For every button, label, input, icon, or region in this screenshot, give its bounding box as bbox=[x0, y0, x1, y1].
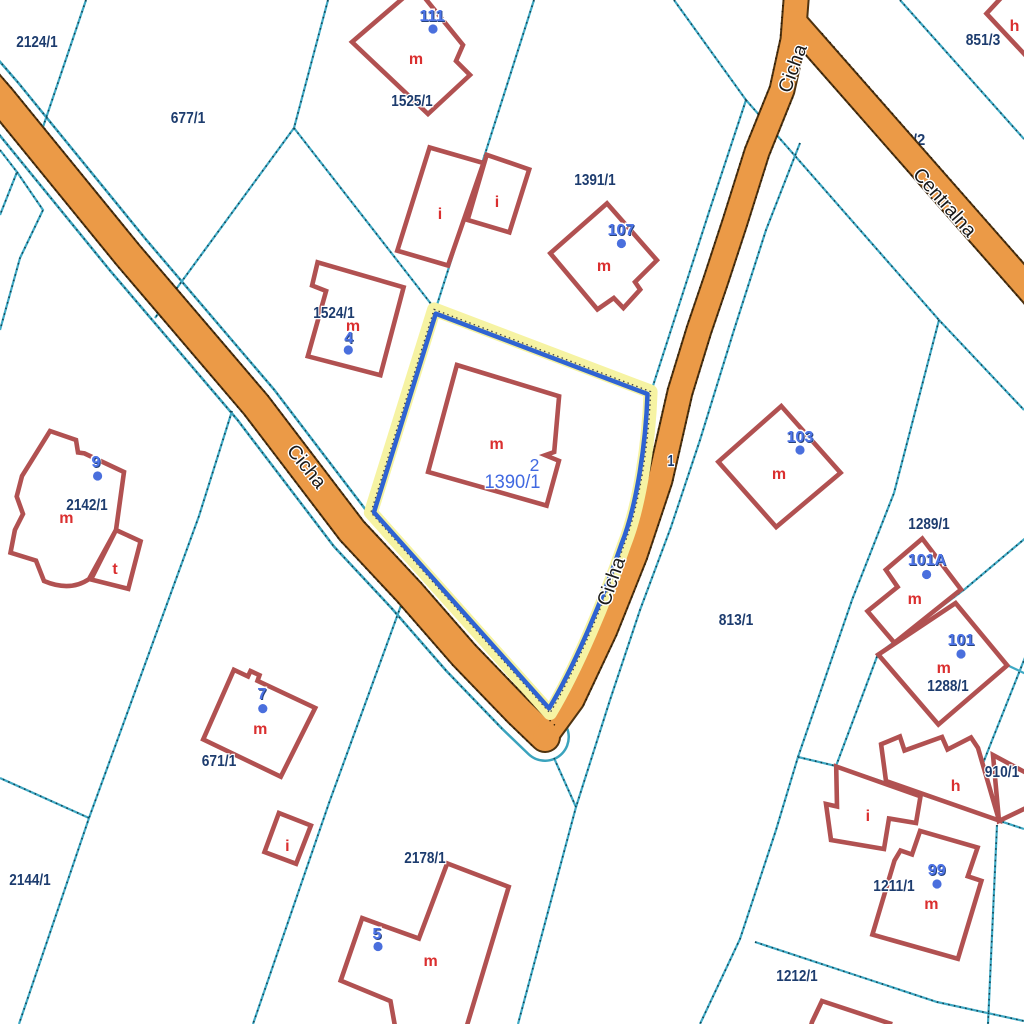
svg-text:1: 1 bbox=[668, 453, 675, 470]
svg-text:m: m bbox=[253, 721, 267, 738]
svg-text:103: 103 bbox=[787, 429, 814, 446]
svg-text:h: h bbox=[1010, 18, 1020, 35]
svg-text:101: 101 bbox=[948, 632, 975, 649]
svg-text:2: 2 bbox=[530, 455, 540, 475]
svg-text:m: m bbox=[908, 591, 922, 608]
svg-text:2178/1: 2178/1 bbox=[404, 850, 445, 867]
svg-text:1525/1: 1525/1 bbox=[391, 93, 432, 110]
svg-text:107: 107 bbox=[608, 222, 635, 239]
svg-text:4: 4 bbox=[344, 330, 353, 347]
svg-text:671/1: 671/1 bbox=[202, 753, 237, 770]
svg-text:h: h bbox=[951, 778, 961, 795]
svg-text:i: i bbox=[285, 838, 289, 855]
svg-text:813/1: 813/1 bbox=[719, 612, 754, 629]
svg-text:m: m bbox=[409, 51, 423, 68]
svg-text:m: m bbox=[924, 896, 938, 913]
svg-text:m: m bbox=[772, 466, 786, 483]
svg-text:2144/1: 2144/1 bbox=[9, 872, 50, 889]
svg-text:2124/1: 2124/1 bbox=[16, 34, 57, 51]
svg-text:m: m bbox=[489, 436, 503, 453]
svg-text:i: i bbox=[438, 206, 442, 223]
svg-text:1289/1: 1289/1 bbox=[908, 516, 949, 533]
svg-text:i: i bbox=[495, 194, 499, 211]
svg-text:t: t bbox=[112, 561, 118, 578]
svg-text:1211/1: 1211/1 bbox=[873, 878, 914, 895]
svg-text:5: 5 bbox=[373, 926, 382, 943]
svg-text:9: 9 bbox=[92, 454, 101, 471]
svg-text:111: 111 bbox=[420, 8, 445, 25]
svg-text:7: 7 bbox=[258, 686, 267, 703]
svg-text:m: m bbox=[423, 953, 437, 970]
svg-text:101A: 101A bbox=[908, 552, 947, 569]
svg-text:m: m bbox=[59, 510, 73, 527]
svg-text:99: 99 bbox=[928, 862, 946, 879]
svg-text:1212/1: 1212/1 bbox=[776, 968, 817, 985]
svg-text:1391/1: 1391/1 bbox=[574, 172, 615, 189]
svg-text:i: i bbox=[866, 808, 870, 825]
svg-text:m: m bbox=[597, 258, 611, 275]
svg-text:910/1: 910/1 bbox=[985, 764, 1020, 781]
svg-text:851/3: 851/3 bbox=[966, 32, 1001, 49]
svg-text:677/1: 677/1 bbox=[171, 110, 206, 127]
svg-text:1288/1: 1288/1 bbox=[927, 678, 968, 695]
svg-text:m: m bbox=[937, 660, 951, 677]
